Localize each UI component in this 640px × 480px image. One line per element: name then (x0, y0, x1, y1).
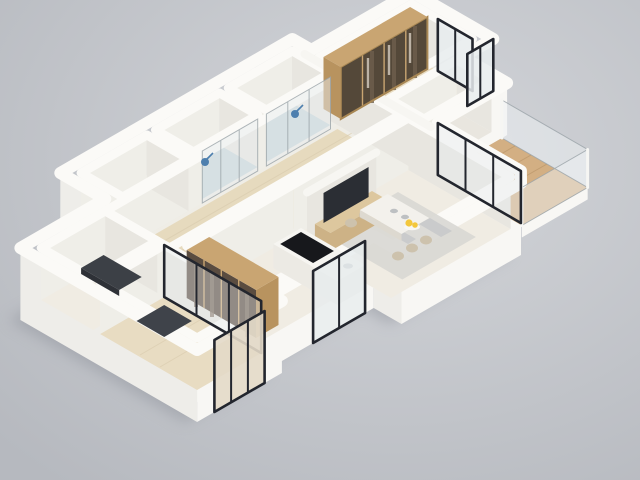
ensuite-shower-head (291, 110, 299, 118)
dining-chair (345, 219, 357, 228)
floorplan-render-stage (0, 0, 640, 480)
table-setting (401, 215, 409, 219)
dining-chair (392, 252, 404, 261)
fruit-yellow (412, 222, 418, 228)
fruit-yellow (405, 219, 412, 226)
table-setting (390, 209, 398, 213)
bathroom-shower-head (201, 158, 209, 166)
floorplan-render (0, 0, 640, 480)
dining-chair (420, 236, 432, 245)
dining-chair (406, 244, 418, 253)
